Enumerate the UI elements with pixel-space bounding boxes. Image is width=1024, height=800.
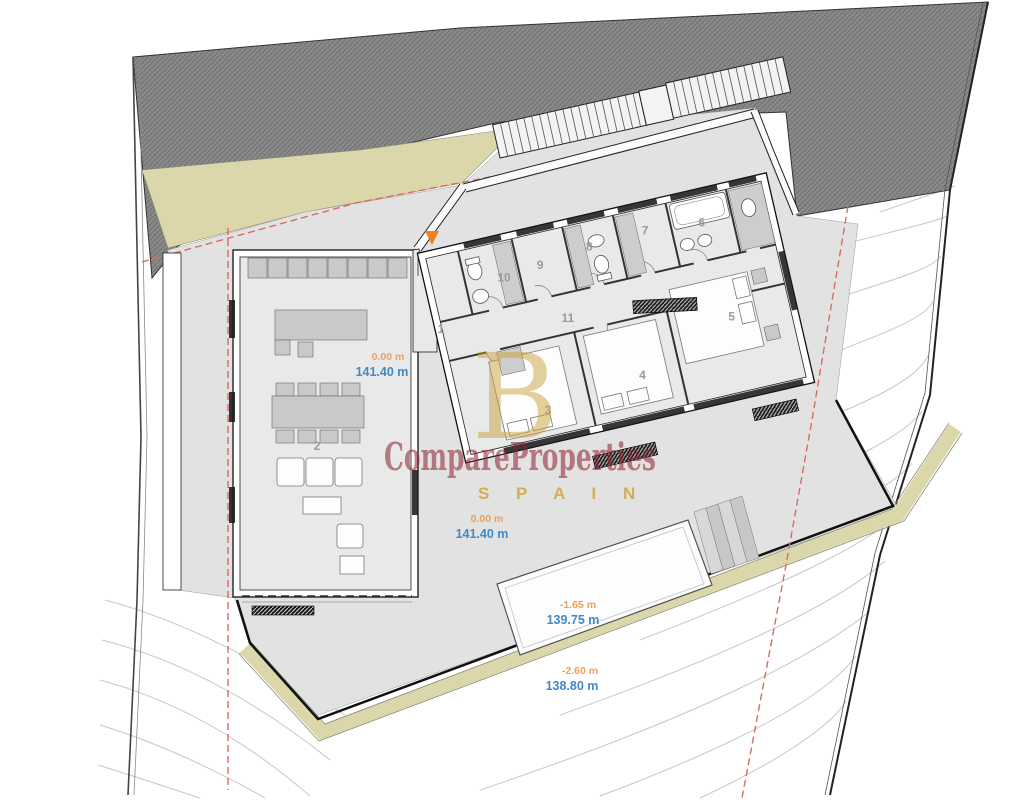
room-label-9: 9 xyxy=(537,258,544,272)
west-wing xyxy=(229,250,418,615)
pergola-bar xyxy=(252,606,314,615)
room-label-1: 1 xyxy=(438,322,445,336)
kitchen-island xyxy=(275,310,367,340)
kitchen-unit xyxy=(298,342,313,357)
terrace-level-abs: 141.40 m xyxy=(456,527,509,541)
room-label-11: 11 xyxy=(561,311,574,325)
lower-level-abs: 138.80 m xyxy=(546,679,599,693)
room-label-8: 8 xyxy=(586,240,593,254)
house-level-abs: 141.40 m xyxy=(356,365,409,379)
room-label-7: 7 xyxy=(642,224,649,238)
terrace-level-rel: 0.00 m xyxy=(471,513,504,525)
kitchen-unit xyxy=(275,340,290,355)
site-plan-canvas: 3 4 5 6 7 8 9 10 11 0.00 m 141.40 m 0.00… xyxy=(0,0,1024,800)
site-plan-svg: 3 4 5 6 7 8 9 10 11 0.00 m 141.40 m 0.00… xyxy=(0,0,1024,800)
lower-level-rel: -2.60 m xyxy=(562,665,598,677)
watermark-country: S P A I N xyxy=(478,484,646,503)
room-label-6: 6 xyxy=(698,216,705,230)
room-label-4: 4 xyxy=(639,368,646,382)
west-terrace-wall xyxy=(163,253,181,590)
watermark-brand: CompareProperties xyxy=(384,434,656,479)
house-level-rel: 0.00 m xyxy=(372,351,405,363)
room-label-10: 10 xyxy=(497,271,511,285)
room-label-2: 2 xyxy=(314,439,321,453)
pool-level-abs: 139.75 m xyxy=(547,613,600,627)
pool-level-rel: -1.65 m xyxy=(560,599,596,611)
room-label-5: 5 xyxy=(728,309,735,323)
